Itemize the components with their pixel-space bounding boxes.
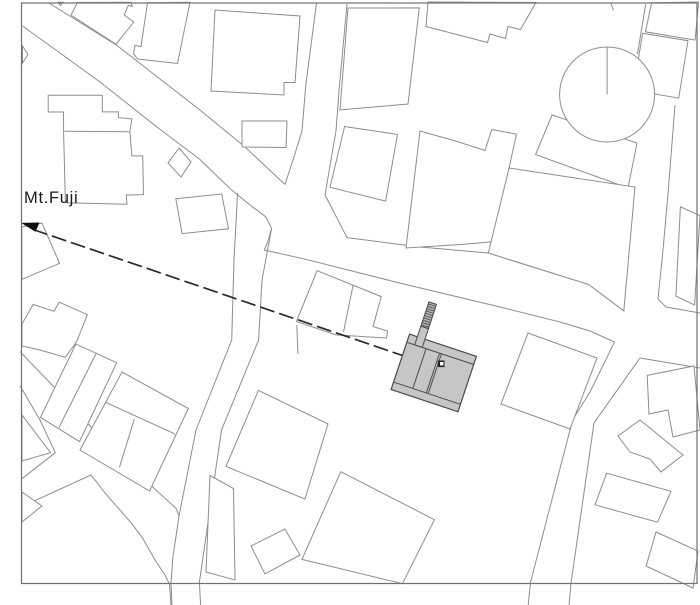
- svg-text:Mt.Fuji: Mt.Fuji: [24, 189, 78, 207]
